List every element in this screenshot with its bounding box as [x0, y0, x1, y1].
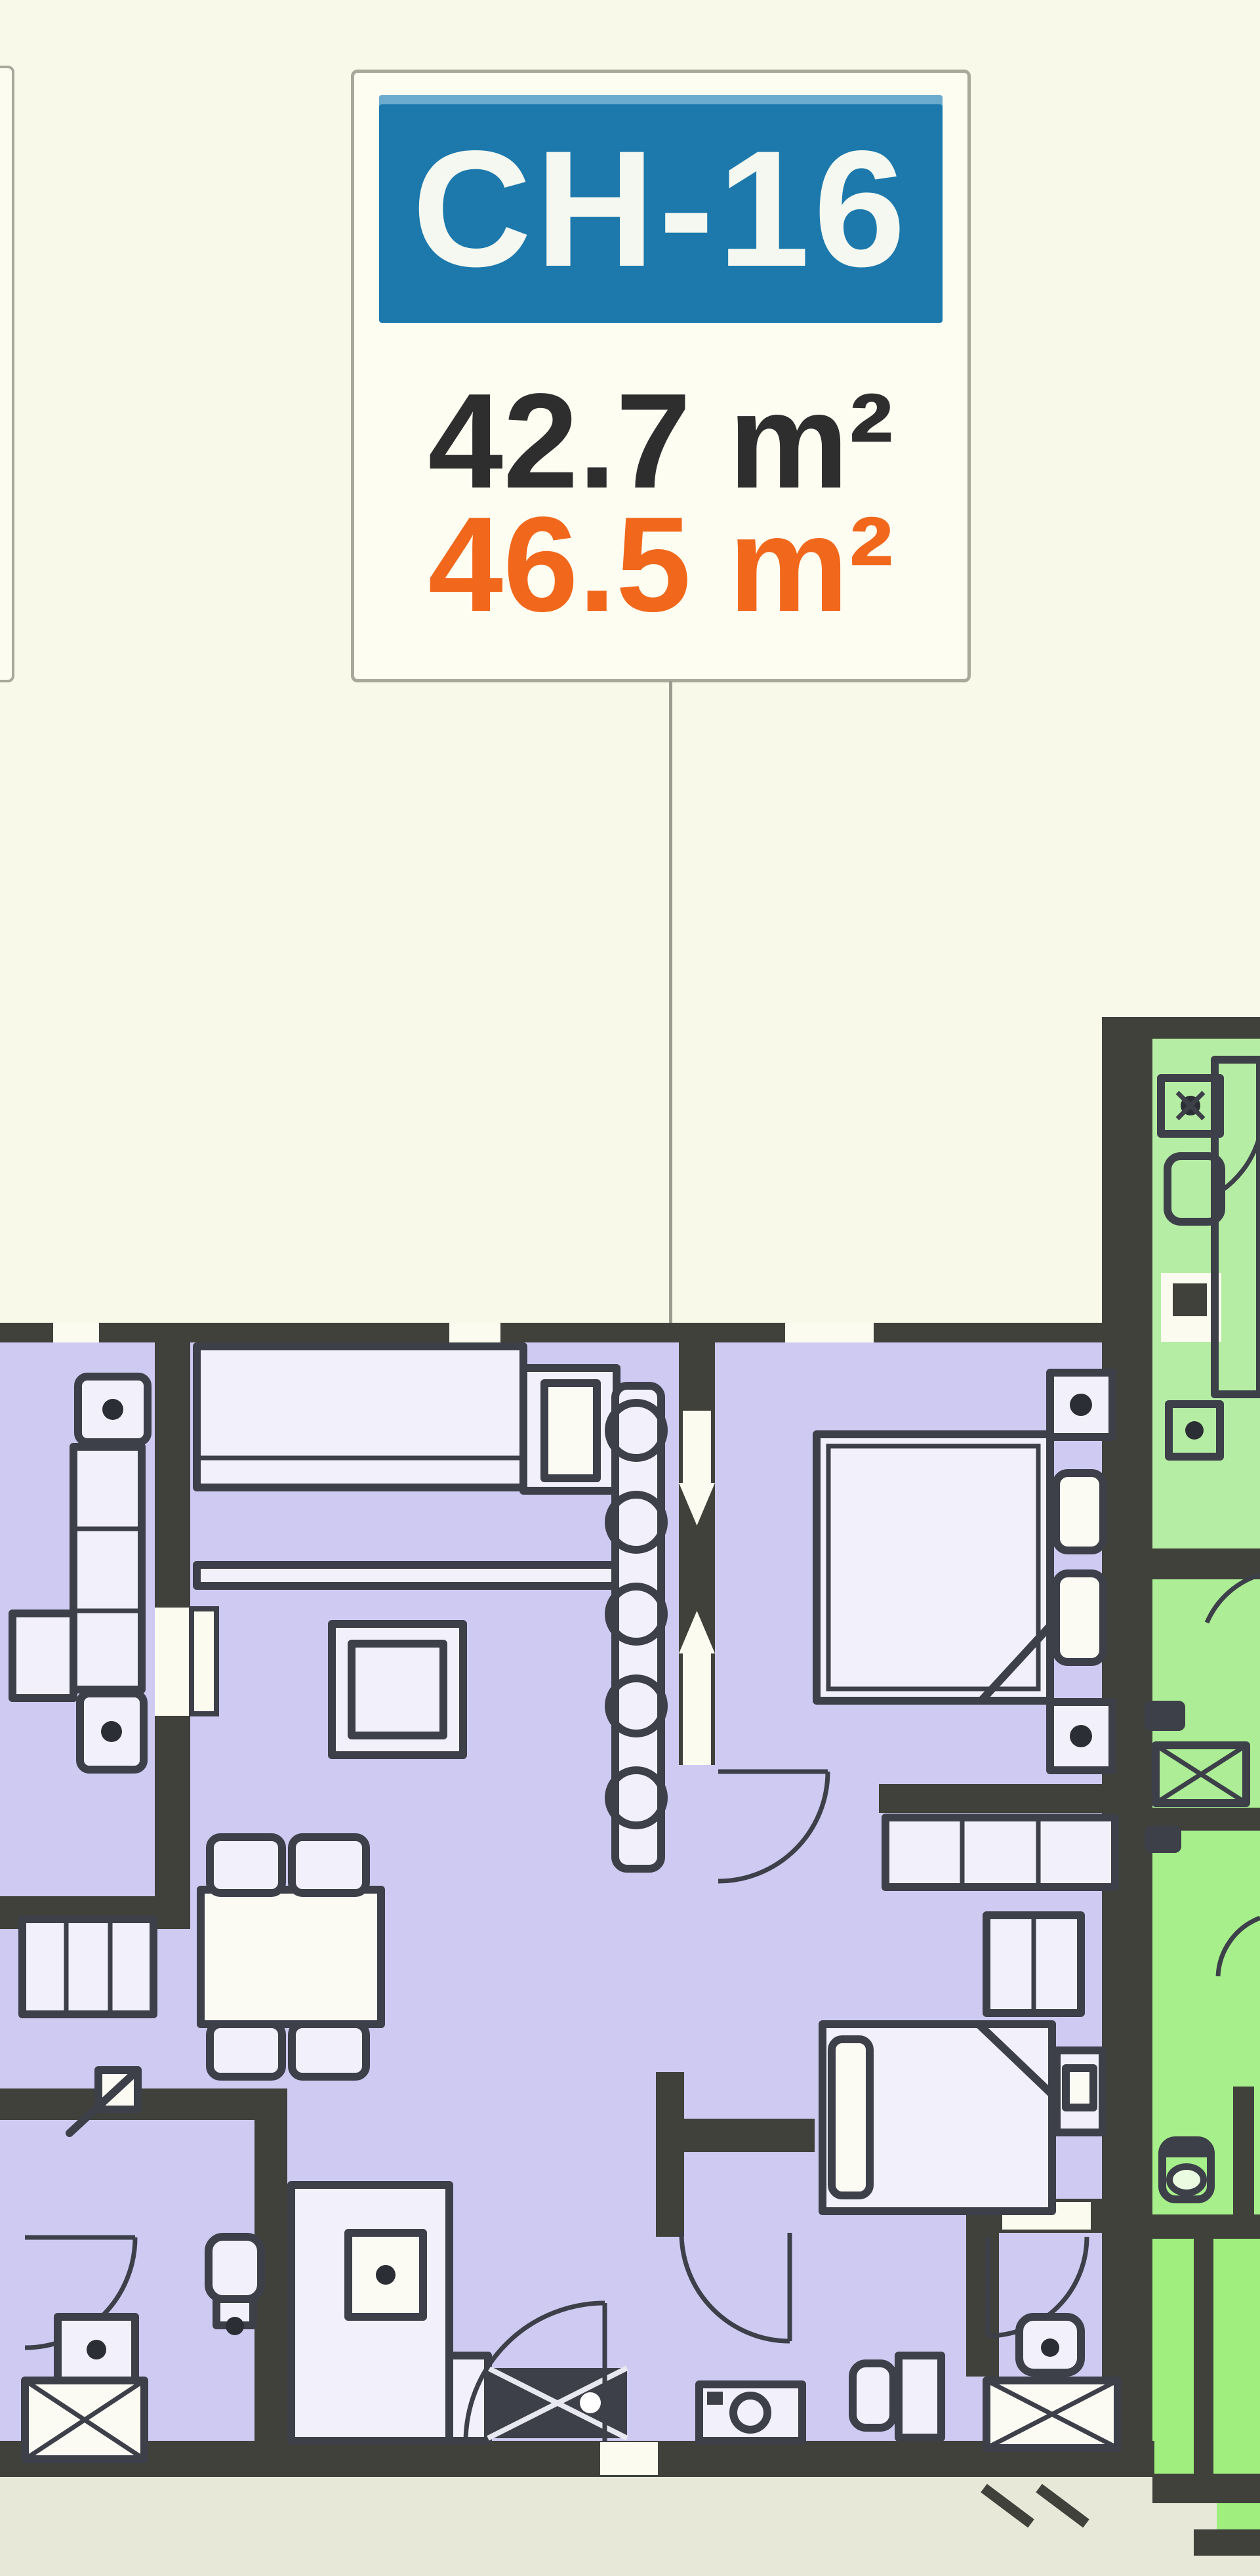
page-canvas: CH-16 42.7 m² 46.5 m²: [0, 0, 1260, 2576]
floor-plan[interactable]: [0, 0, 1260, 2576]
